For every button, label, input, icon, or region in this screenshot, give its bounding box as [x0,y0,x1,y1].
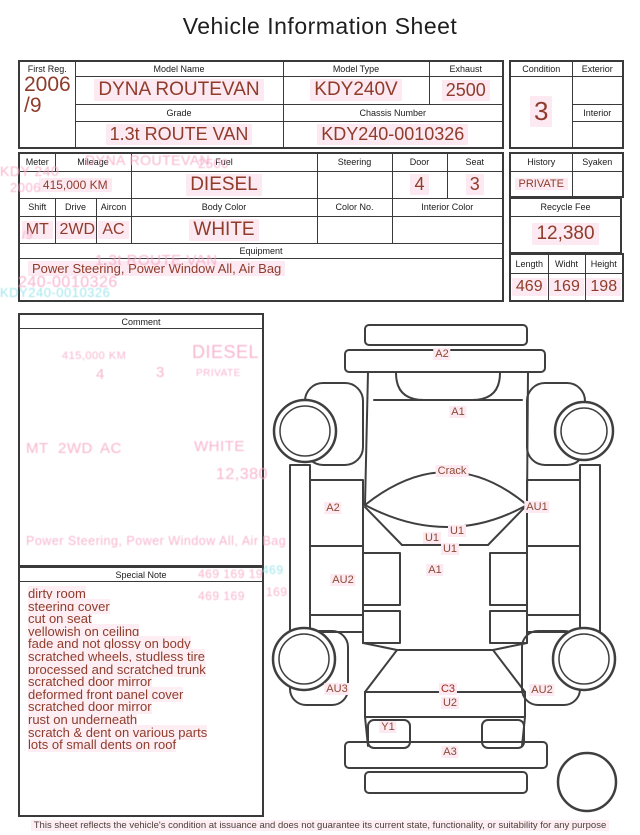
width-label: Widht [548,254,585,273]
first-reg-month: /9 [20,95,75,116]
model-name-value: DYNA ROUTEVAN [75,76,283,104]
exhaust-label: Exhaust [429,61,503,76]
door-label: Door [392,153,447,171]
aircon-value: AC [96,216,131,243]
syaken-value [572,171,623,197]
grade-label: Grade [75,104,283,121]
damage-label-crack: Crack [436,465,469,477]
damage-label-right-front-door: AU1 [524,501,549,513]
condition-value: 3 [510,76,572,148]
steering-value [317,171,392,198]
chassis-value: KDY240-0010326 [283,121,503,148]
chassis-label: Chassis Number [283,104,503,121]
exterior-value [572,76,623,104]
interior-color-value [392,216,503,243]
dimensions-table: Length Widht Height 469 169 198 [509,253,624,302]
damage-label-floor-u1-b: U1 [448,525,466,537]
mileage-label: Mileage [55,153,131,171]
first-reg-year: 2006 [20,74,75,95]
damage-label-cargo-a1: A1 [426,564,443,576]
recycle-fee-value: 12,380 [510,216,621,253]
door-value: 4 [392,171,447,198]
fuel-value: DIESEL [131,171,317,198]
interior-label: Interior [572,104,623,121]
recycle-fee-table: Recycle Fee 12,380 [509,197,622,254]
damage-label-left-side-au2: AU2 [330,574,355,586]
grade-value: 1.3t ROUTE VAN [75,121,283,148]
vehicle-information-sheet: Vehicle Information Sheet First Reg. 200… [0,0,640,835]
aircon-label: Aircon [96,198,131,216]
disclaimer: This sheet reflects the vehicle's condit… [0,820,640,831]
interior-color-label: Interior Color [392,198,503,216]
equipment-label: Equipment [19,243,503,258]
damage-label-rear-u2: U2 [441,697,459,709]
height-value: 198 [585,273,623,301]
page-title: Vehicle Information Sheet [0,13,640,40]
length-value: 469 [510,273,548,301]
damage-label-rear-c3: C3 [439,683,457,695]
seat-label: Seat [447,153,503,171]
meter-label: Meter [19,153,55,171]
syaken-label: Syaken [572,153,623,171]
special-note-box: Special Note dirty room steering cover c… [18,566,264,817]
color-no-label: Color No. [317,198,392,216]
exhaust-value: 2500 [429,76,503,104]
damage-label-left-rear-au3: AU3 [324,683,349,695]
recycle-fee-label: Recycle Fee [510,198,621,216]
equipment-value: Power Steering, Power Window All, Air Ba… [19,258,503,301]
history-label: History [510,153,572,171]
special-note-item: lots of small dents on roof [28,739,254,752]
height-label: Height [585,254,623,273]
comment-header: Comment [20,315,262,329]
model-name-label: Model Name [75,61,283,76]
history-value: PRIVATE [510,171,572,197]
width-value: 169 [548,273,585,301]
damage-label-floor-u1-c: U1 [441,543,459,555]
car-damage-diagram: A2 A1 Crack A2 AU1 U1 U1 U1 A1 AU2 AU3 C… [270,313,640,818]
length-label: Length [510,254,548,273]
model-type-label: Model Type [283,61,429,76]
damage-label-left-front-door: A2 [324,502,341,514]
car-outline-drawing [270,313,640,818]
drive-value: 2WD [55,216,96,243]
model-type-value: KDY240V [283,76,429,104]
condition-label: Condition [510,61,572,76]
damage-label-front-bumper: A2 [433,348,450,360]
condition-table: Condition Exterior 3 Interior [509,60,624,149]
steering-label: Steering [317,153,392,171]
seat-value: 3 [447,171,503,198]
body-color-label: Body Color [131,198,317,216]
identity-table: First Reg. 2006 /9 Model Name Model Type… [18,60,504,149]
damage-label-right-rear-au2: AU2 [529,684,554,696]
special-note-header: Special Note [20,568,262,582]
damage-label-rear-y1: Y1 [379,721,396,733]
shift-value: MT [19,216,55,243]
drive-label: Drive [55,198,96,216]
first-reg-cell: First Reg. 2006 /9 [19,61,75,148]
interior-value [572,121,623,148]
damage-label-floor-u1-a: U1 [423,532,441,544]
body-color-value: WHITE [131,216,317,243]
exterior-label: Exterior [572,61,623,76]
color-no-value [317,216,392,243]
history-table: History Syaken PRIVATE [509,152,624,198]
damage-label-front-panel: A1 [449,406,466,418]
specs-table: Meter Mileage Fuel Steering Door Seat 41… [18,152,504,302]
damage-label-rear-bumper-a3: A3 [441,746,458,758]
mileage-value: 415,000 KM [19,171,131,198]
fuel-label: Fuel [131,153,317,171]
comment-box: Comment [18,313,264,567]
special-note-list: dirty room steering cover cut on seat ye… [20,582,262,758]
shift-label: Shift [19,198,55,216]
